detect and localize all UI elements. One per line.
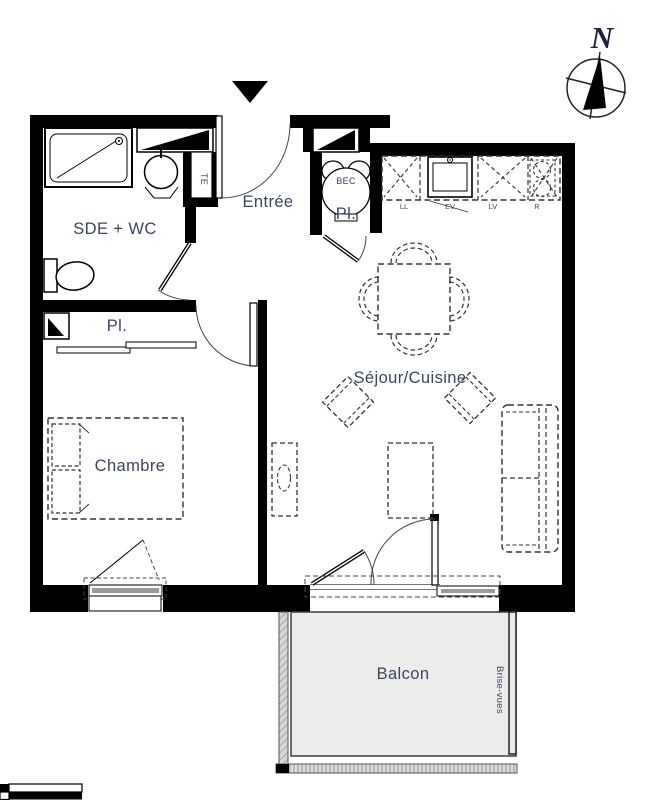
walls xyxy=(30,115,575,612)
sink-icon xyxy=(428,157,472,197)
privacy-screen-left xyxy=(279,612,288,770)
room-label-closet-bedroom: Pl. xyxy=(92,318,142,335)
dining-table xyxy=(359,243,469,355)
bedroom-window xyxy=(84,540,166,611)
kitchen-unit-label-lv: LV xyxy=(481,203,505,211)
shower-icon xyxy=(45,128,132,187)
washbasin-icon xyxy=(145,145,179,198)
kitchen-unit-label-ev: EV xyxy=(438,203,462,211)
balcony xyxy=(276,612,517,773)
balcony-railing xyxy=(276,764,517,773)
kitchen-unit-label-r: R xyxy=(527,203,547,211)
tv-cabinet-icon xyxy=(272,443,297,516)
water-heater-label: BEC xyxy=(326,177,366,186)
room-label-sde-wc: SDE + WC xyxy=(60,221,170,238)
room-label-balcon: Balcon xyxy=(353,666,453,683)
compass-north-label: N xyxy=(585,22,619,55)
room-label-chambre: Chambre xyxy=(80,458,180,475)
entrance-arrow-icon xyxy=(232,81,268,103)
toilet-icon xyxy=(44,259,96,293)
room-label-sejour-cuisine: Séjour/Cuisine xyxy=(335,370,485,387)
chair-icon xyxy=(359,243,469,355)
room-label-closet-water-heater: Pl. xyxy=(321,206,371,223)
electrical-panel-label: TE xyxy=(196,162,208,196)
sofa-icon xyxy=(502,405,558,552)
kitchen-unit-label-ll: LL xyxy=(392,203,416,211)
floor-plan-drawing xyxy=(0,0,657,800)
living-room-window xyxy=(437,585,499,611)
north-compass-icon xyxy=(566,52,626,119)
privacy-screen-label: Brise-vues xyxy=(491,650,504,730)
floor-plan: N Entrée SDE + WC Pl. Pl. BEC TE Séjour/… xyxy=(0,0,657,800)
coffee-table-icon xyxy=(388,443,433,518)
balcony-railing-post xyxy=(276,764,289,773)
privacy-screen-right xyxy=(509,612,516,754)
scale-bar xyxy=(0,784,82,800)
room-label-entree: Entrée xyxy=(230,194,306,211)
hob-icon xyxy=(530,160,555,197)
balcony-floor xyxy=(291,612,516,756)
closet-sliding-doors xyxy=(57,342,196,353)
